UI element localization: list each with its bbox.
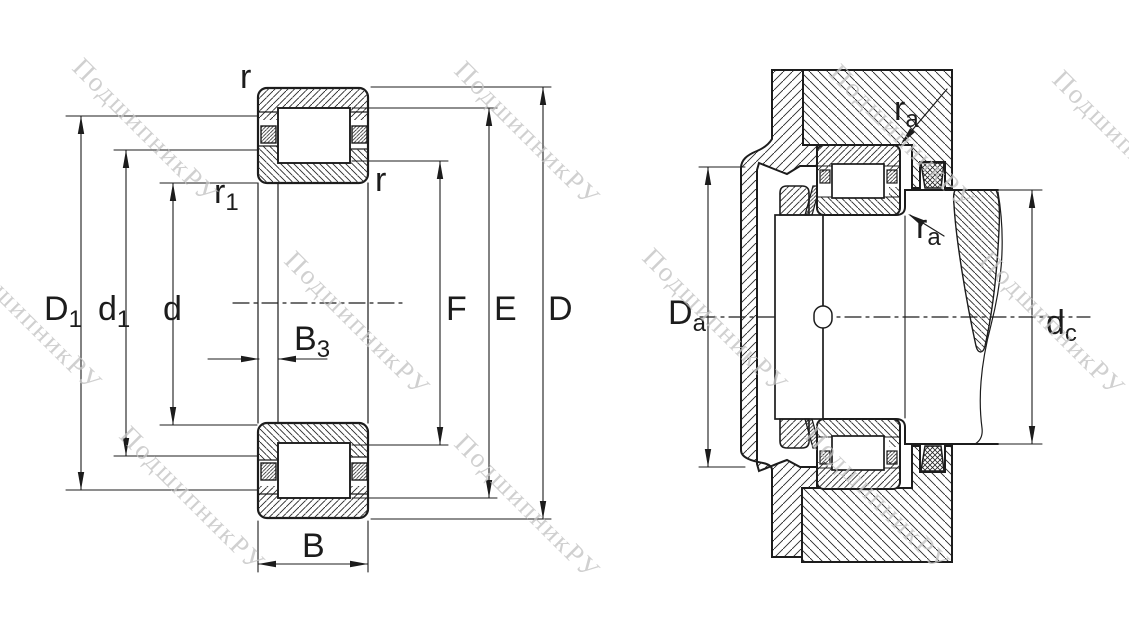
- retaining-ring-bottom: [921, 446, 944, 471]
- cage-bar: [887, 170, 897, 183]
- drawing-canvas: ПодшипникРУ ПодшипникРУ ПодшипникРУ Подш…: [0, 0, 1129, 632]
- right-view: Da dc ra ra: [668, 70, 1090, 562]
- inner-ring-hatch: [258, 146, 278, 183]
- roller: [278, 443, 350, 498]
- cage-bar: [887, 451, 897, 464]
- radius-label-r-top: r: [240, 58, 251, 96]
- cage-bar: [261, 463, 276, 480]
- dim-label-B: B: [302, 527, 325, 565]
- shaft-center-feature: [814, 306, 832, 328]
- shaft-break-section: [954, 190, 1000, 352]
- cage-bar: [352, 126, 367, 143]
- radius-label-r1: r1: [214, 173, 239, 216]
- radius-label-r-right: r: [375, 161, 386, 199]
- radius-label-ra-bottom: ra: [916, 208, 941, 251]
- cage-bar: [352, 463, 367, 480]
- bearing-section-bottom: [258, 423, 368, 518]
- dim-label-E: E: [494, 290, 517, 328]
- dim-label-Da: Da: [668, 294, 707, 337]
- dim-label-D1: D1: [44, 290, 82, 333]
- dim-label-dc: dc: [1046, 304, 1077, 347]
- roller: [832, 164, 884, 198]
- left-view: D1 d1 d B3 B F E D r r r1: [44, 58, 573, 572]
- spacer-ring-top: [780, 186, 809, 215]
- technical-drawing: D1 d1 d B3 B F E D r r r1: [0, 0, 1129, 632]
- bearing-section-bottom: [817, 419, 900, 489]
- cage-bar: [261, 126, 276, 143]
- dim-label-B3: B3: [294, 320, 330, 363]
- dim-label-D: D: [548, 290, 573, 328]
- dim-label-d1: d1: [98, 290, 130, 333]
- retaining-ring-top: [921, 163, 944, 188]
- bearing-section-top: [817, 145, 900, 215]
- bearing-section-top: [258, 88, 368, 183]
- spacer-ring-bottom: [780, 419, 809, 448]
- cage-bar: [820, 170, 830, 183]
- dim-label-d: d: [163, 290, 182, 328]
- roller: [832, 436, 884, 470]
- roller: [278, 108, 350, 163]
- cage-bar: [820, 451, 830, 464]
- dim-label-F: F: [446, 290, 467, 328]
